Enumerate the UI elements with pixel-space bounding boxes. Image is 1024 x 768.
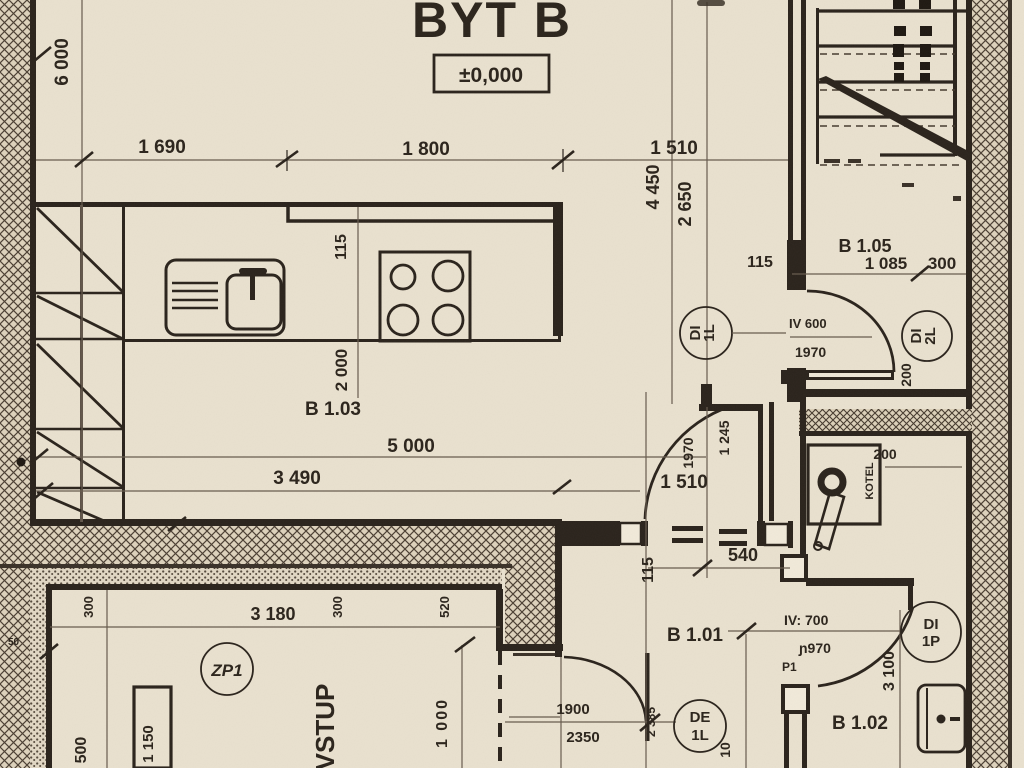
svg-text:50: 50 [8, 637, 20, 648]
